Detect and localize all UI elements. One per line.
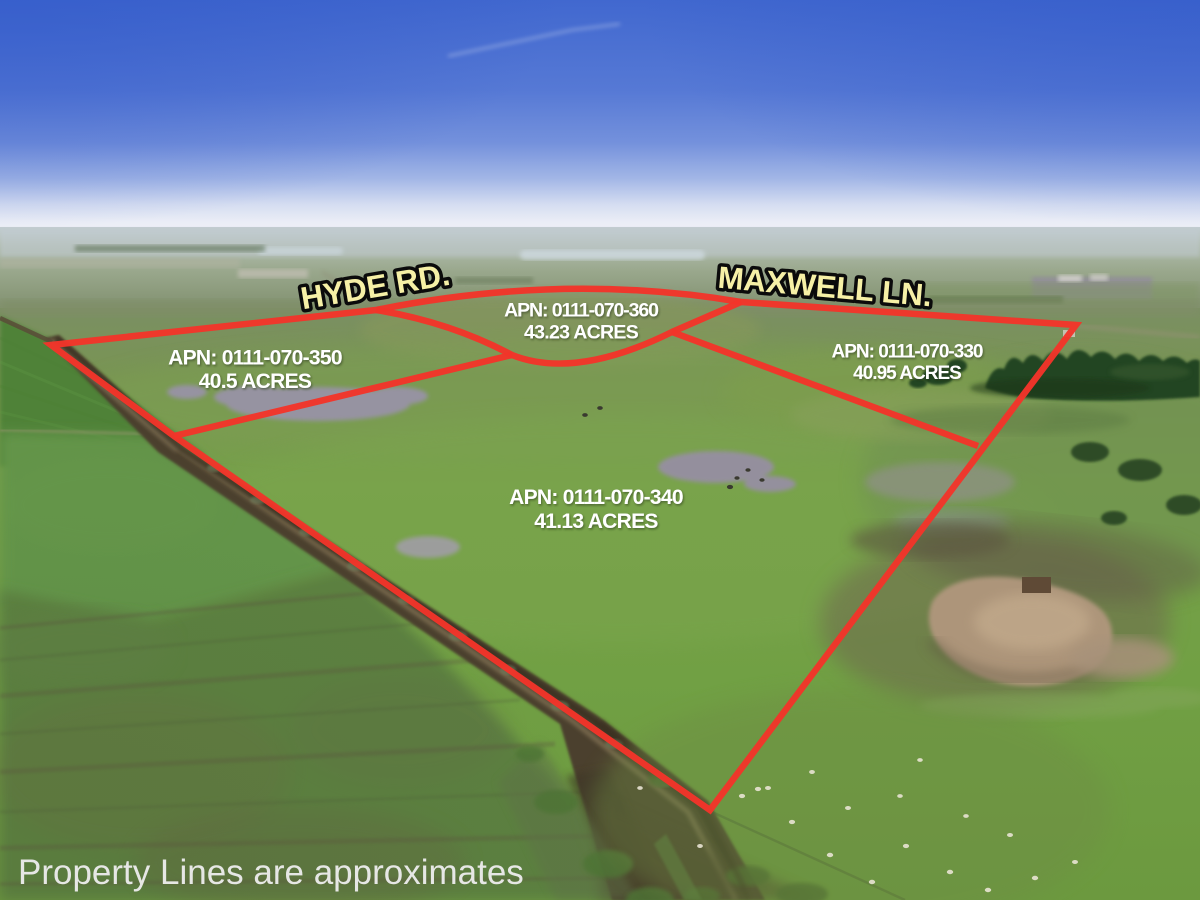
svg-text:43.23 ACRES: 43.23 ACRES xyxy=(524,322,639,344)
svg-text:APN: 0111-070-330: APN: 0111-070-330 xyxy=(832,342,983,363)
svg-text:APN: 0111-070-360: APN: 0111-070-360 xyxy=(504,300,659,322)
svg-text:41.13 ACRES: 41.13 ACRES xyxy=(534,510,658,533)
svg-text:APN: 0111-070-350: APN: 0111-070-350 xyxy=(168,347,342,370)
svg-text:40.95 ACRES: 40.95 ACRES xyxy=(853,363,961,384)
svg-text:Property Lines are approximate: Property Lines are approximates xyxy=(18,853,524,892)
svg-text:APN: 0111-070-340: APN: 0111-070-340 xyxy=(509,486,683,509)
svg-text:40.5 ACRES: 40.5 ACRES xyxy=(199,370,312,393)
